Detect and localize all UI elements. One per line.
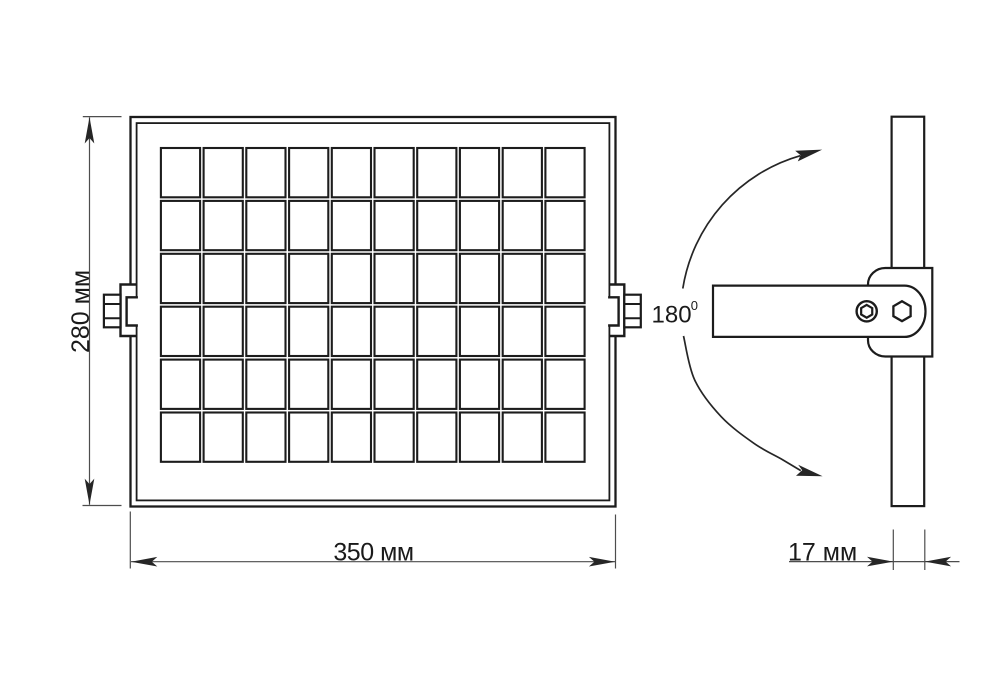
svg-text:0: 0 [691, 298, 698, 313]
svg-text:17 мм: 17 мм [788, 539, 857, 567]
svg-text:350 мм: 350 мм [333, 539, 413, 567]
svg-text:180: 180 [652, 302, 692, 329]
svg-text:280 мм: 280 мм [67, 270, 95, 353]
